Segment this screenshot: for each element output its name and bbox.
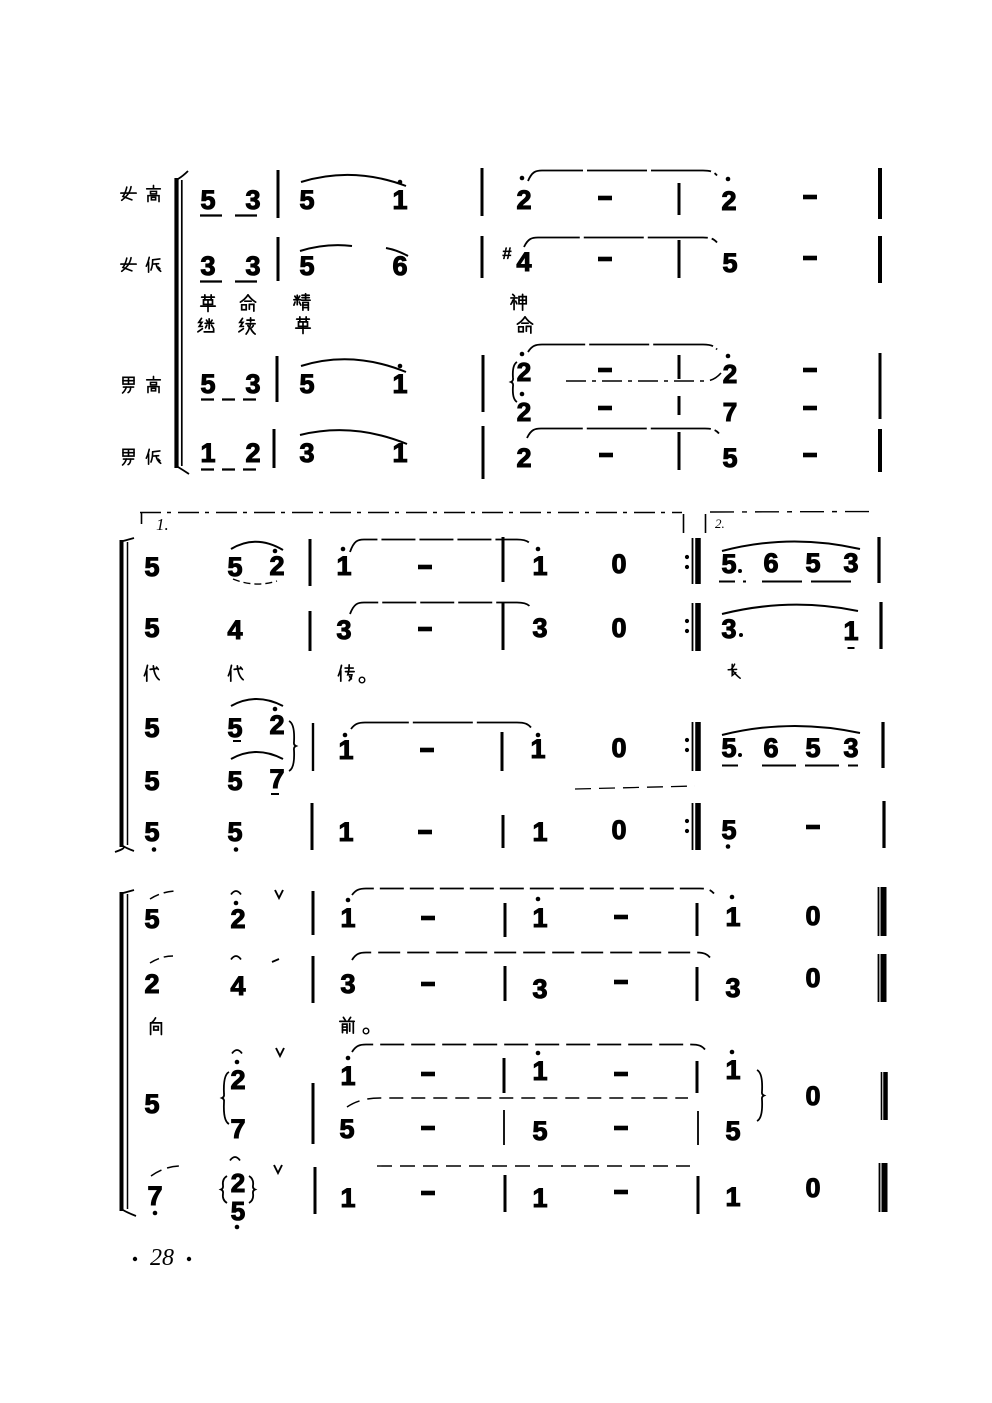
svg-text:#: # — [502, 244, 512, 263]
svg-text:2: 2 — [231, 1168, 245, 1198]
svg-text:6: 6 — [392, 251, 407, 281]
svg-text:5: 5 — [144, 904, 159, 934]
svg-text:5: 5 — [227, 817, 242, 847]
svg-text:5: 5 — [339, 1114, 354, 1144]
svg-text:5: 5 — [144, 766, 159, 796]
svg-text:1: 1 — [336, 551, 351, 581]
svg-text:3: 3 — [336, 615, 351, 645]
svg-text:2: 2 — [230, 1065, 245, 1095]
svg-text:1.: 1. — [156, 515, 169, 534]
svg-text:0: 0 — [611, 733, 626, 763]
svg-text:0: 0 — [611, 613, 626, 643]
svg-text:1: 1 — [340, 1061, 355, 1091]
svg-text:5: 5 — [721, 549, 736, 579]
svg-text:7: 7 — [269, 764, 284, 794]
svg-text:3: 3 — [843, 733, 858, 763]
svg-text:5: 5 — [299, 185, 314, 215]
svg-text:5: 5 — [299, 369, 314, 399]
svg-text:3: 3 — [245, 185, 260, 215]
svg-text:2: 2 — [517, 397, 531, 427]
svg-text:3: 3 — [245, 369, 260, 399]
svg-text:5: 5 — [227, 552, 242, 582]
svg-text:6: 6 — [763, 733, 778, 763]
svg-text:2: 2 — [516, 443, 531, 473]
svg-text:1: 1 — [392, 185, 407, 215]
svg-text:2: 2 — [269, 710, 284, 740]
svg-text:1: 1 — [532, 817, 547, 847]
svg-text:3: 3 — [340, 969, 355, 999]
svg-text:0: 0 — [611, 815, 626, 845]
svg-text:2: 2 — [144, 969, 159, 999]
svg-text:5: 5 — [200, 185, 215, 215]
svg-text:1: 1 — [530, 734, 545, 764]
svg-text:3: 3 — [245, 251, 260, 281]
svg-text:0: 0 — [805, 963, 820, 993]
svg-text:6: 6 — [763, 548, 778, 578]
svg-text:2: 2 — [230, 904, 245, 934]
svg-text:5: 5 — [805, 733, 820, 763]
svg-text:3: 3 — [725, 973, 740, 1003]
svg-text:3: 3 — [843, 548, 858, 578]
svg-text:3: 3 — [532, 974, 547, 1004]
svg-text:2: 2 — [516, 185, 531, 215]
svg-text:2: 2 — [269, 551, 284, 581]
svg-text:5: 5 — [227, 713, 242, 743]
svg-text:1: 1 — [338, 817, 353, 847]
svg-text:1: 1 — [532, 1183, 547, 1213]
svg-text:5: 5 — [144, 552, 159, 582]
svg-text:1: 1 — [340, 1183, 355, 1213]
svg-text:1: 1 — [725, 1055, 740, 1085]
svg-text:2: 2 — [245, 438, 260, 468]
svg-text:3: 3 — [200, 251, 215, 281]
svg-text:2: 2 — [517, 357, 531, 387]
svg-text:5: 5 — [144, 1089, 159, 1119]
svg-text:5: 5 — [722, 248, 737, 278]
svg-text:4: 4 — [230, 971, 245, 1001]
svg-text:5: 5 — [532, 1116, 547, 1146]
svg-text:2: 2 — [723, 359, 737, 389]
svg-text:5: 5 — [144, 817, 159, 847]
svg-text:0: 0 — [805, 1081, 820, 1111]
svg-text:7: 7 — [723, 397, 737, 427]
svg-text:1: 1 — [200, 438, 215, 468]
svg-text:1: 1 — [532, 1056, 547, 1086]
svg-text:3: 3 — [532, 613, 547, 643]
svg-text:2: 2 — [721, 186, 736, 216]
svg-text:5: 5 — [721, 815, 736, 845]
svg-text:28: 28 — [150, 1245, 174, 1271]
svg-text:5: 5 — [231, 1196, 245, 1226]
svg-text:3: 3 — [721, 614, 736, 644]
svg-text:4: 4 — [227, 615, 242, 645]
svg-text:5: 5 — [722, 443, 737, 473]
svg-text:3: 3 — [299, 438, 314, 468]
svg-text:4: 4 — [516, 247, 531, 277]
svg-text:1: 1 — [338, 735, 353, 765]
svg-text:5: 5 — [144, 713, 159, 743]
svg-text:7: 7 — [230, 1114, 245, 1144]
svg-text:0: 0 — [805, 901, 820, 931]
svg-text:5: 5 — [725, 1116, 740, 1146]
svg-text:5: 5 — [200, 369, 215, 399]
svg-text:2.: 2. — [715, 516, 725, 531]
svg-text:1: 1 — [532, 903, 547, 933]
svg-text:0: 0 — [805, 1173, 820, 1203]
svg-text:5: 5 — [144, 613, 159, 643]
svg-text:1: 1 — [725, 902, 740, 932]
svg-text:5: 5 — [805, 548, 820, 578]
svg-text:0: 0 — [611, 549, 626, 579]
svg-text:7: 7 — [147, 1181, 162, 1211]
svg-text:1: 1 — [725, 1182, 740, 1212]
svg-text:1: 1 — [392, 369, 407, 399]
svg-text:1: 1 — [392, 438, 407, 468]
svg-text:5: 5 — [299, 251, 314, 281]
svg-text:5: 5 — [721, 733, 736, 763]
svg-text:1: 1 — [532, 551, 547, 581]
svg-text:5: 5 — [227, 766, 242, 796]
svg-text:1: 1 — [340, 903, 355, 933]
svg-text:1: 1 — [843, 616, 858, 646]
